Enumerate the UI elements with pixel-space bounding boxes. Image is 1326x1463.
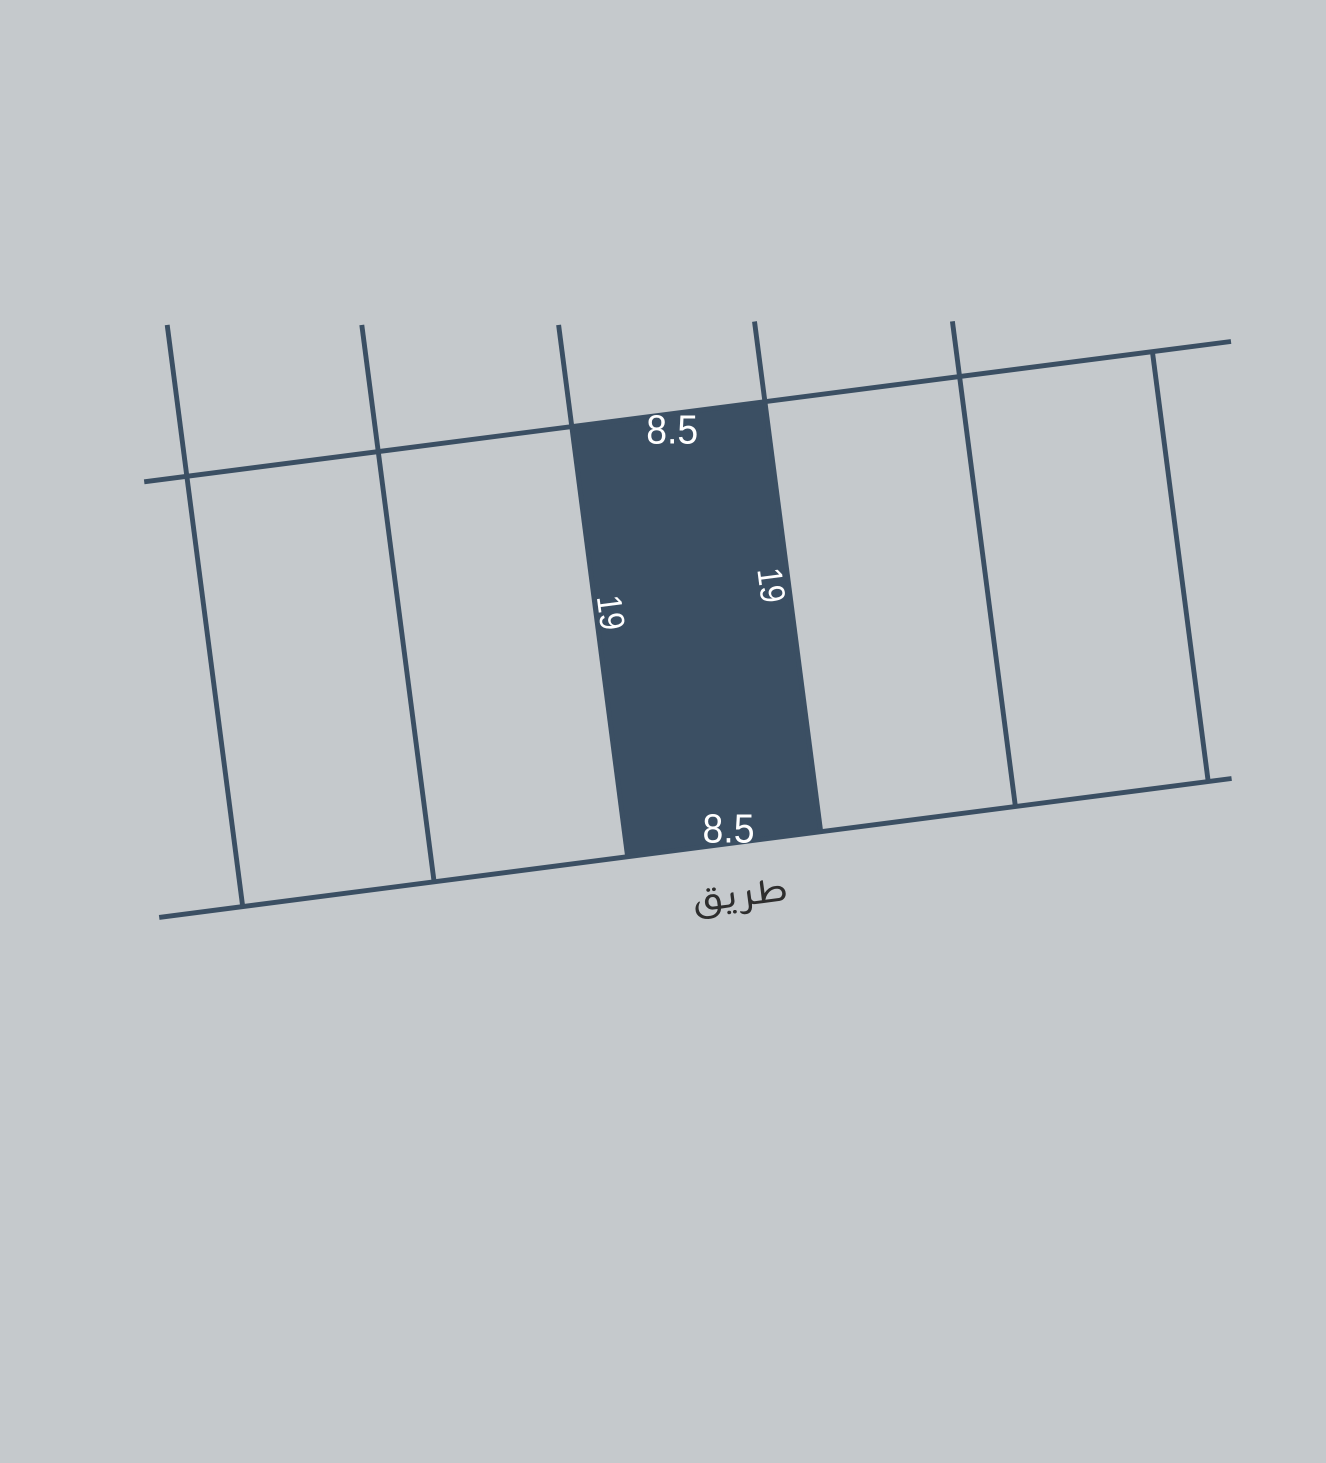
svg-text:8.5: 8.5 (703, 805, 755, 851)
svg-text:19: 19 (589, 593, 632, 633)
svg-text:19: 19 (749, 565, 792, 605)
svg-text:8.5: 8.5 (646, 406, 698, 452)
